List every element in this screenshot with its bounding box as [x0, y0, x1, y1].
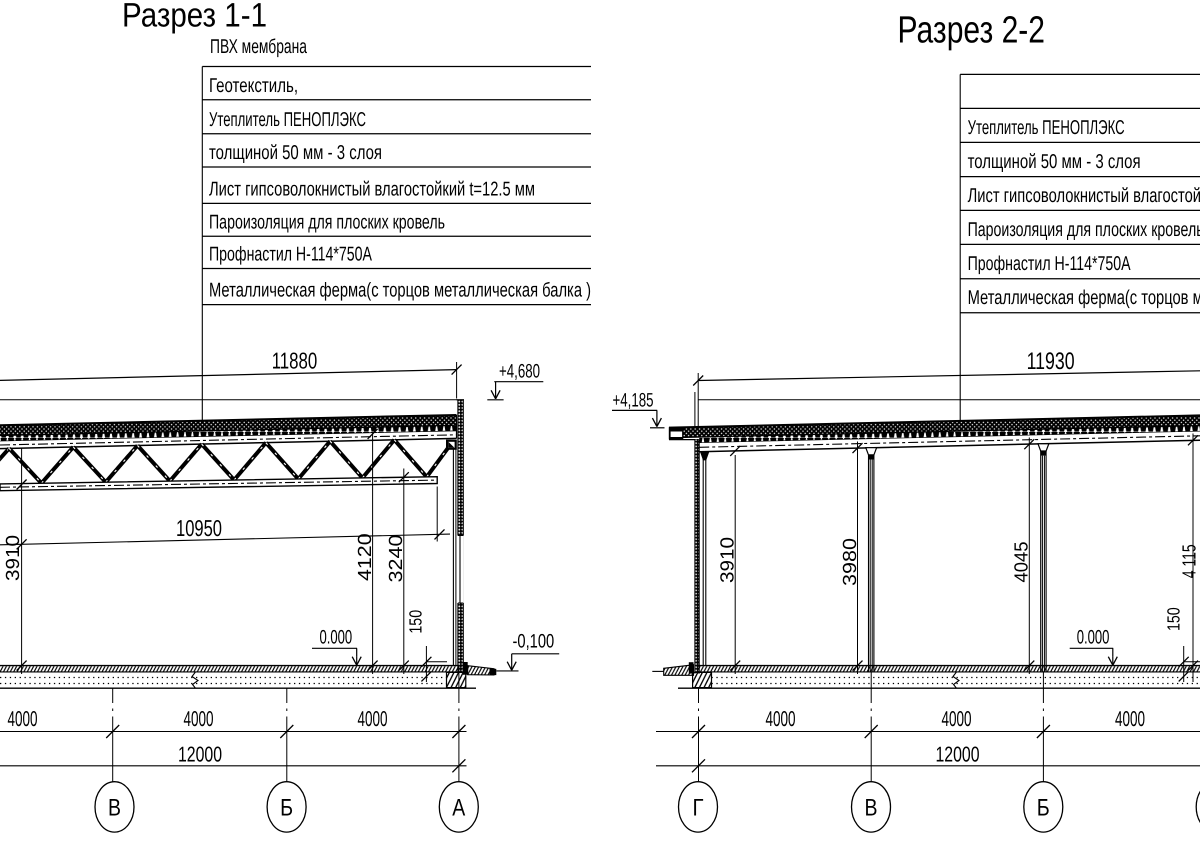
svg-text:Утеплитель ПЕНОПЛЭКС: Утеплитель ПЕНОПЛЭКС	[968, 117, 1125, 139]
svg-text:11930: 11930	[1027, 348, 1075, 375]
svg-text:Б: Б	[1037, 795, 1050, 822]
svg-text:4000: 4000	[1115, 707, 1145, 731]
svg-text:Утеплитель ПЕНОПЛЭКС: Утеплитель ПЕНОПЛЭКС	[209, 109, 366, 131]
svg-text:Г: Г	[693, 795, 704, 822]
svg-text:толщиной 50 мм - 3 слоя: толщиной 50 мм - 3 слоя	[968, 151, 1141, 173]
svg-text:3240: 3240	[386, 535, 407, 583]
svg-text:Металлическая ферма(с торцов м: Металлическая ферма(с торцов металлическ…	[968, 287, 1200, 309]
svg-text:4045: 4045	[1012, 542, 1033, 583]
svg-text:Лист гипсоволокнистый влагосто: Лист гипсоволокнистый влагостойкий t=12.…	[209, 178, 535, 200]
svg-text:0.000: 0.000	[1077, 626, 1110, 648]
svg-text:4000: 4000	[942, 707, 972, 731]
svg-text:4000: 4000	[766, 707, 796, 731]
svg-text:Геотекстиль,: Геотекстиль,	[209, 75, 298, 97]
svg-text:12000: 12000	[936, 742, 980, 766]
svg-text:Пароизоляция для плоских крове: Пароизоляция для плоских кровель	[968, 219, 1200, 241]
svg-text:4 115: 4 115	[1180, 544, 1200, 578]
svg-text:12000: 12000	[178, 742, 222, 766]
svg-text:Б: Б	[280, 795, 293, 822]
svg-text:4120: 4120	[355, 533, 376, 581]
svg-text:Профнастил Н-114*750А: Профнастил Н-114*750А	[209, 244, 372, 266]
svg-text:4000: 4000	[8, 707, 38, 731]
svg-text:+4,680: +4,680	[499, 361, 540, 383]
svg-text:толщиной 50 мм - 3 слоя: толщиной 50 мм - 3 слоя	[209, 142, 382, 164]
svg-text:Профнастил Н-114*750А: Профнастил Н-114*750А	[968, 253, 1131, 275]
svg-text:Пароизоляция для плоских крове: Пароизоляция для плоских кровель	[209, 211, 445, 233]
svg-text:3980: 3980	[840, 538, 861, 586]
svg-text:0.000: 0.000	[320, 626, 353, 648]
svg-text:11880: 11880	[272, 348, 318, 374]
svg-text:10950: 10950	[176, 515, 222, 541]
svg-text:В: В	[108, 795, 121, 822]
svg-text:Лист гипсоволокнистый влагосто: Лист гипсоволокнистый влагостойкий t=12.…	[968, 185, 1200, 207]
svg-text:+4,185: +4,185	[613, 389, 654, 411]
svg-text:А: А	[452, 795, 465, 822]
svg-text:В: В	[865, 795, 878, 822]
svg-text:3910: 3910	[3, 535, 24, 581]
svg-text:Разрез 2-2: Разрез 2-2	[898, 10, 1046, 52]
svg-text:Металлическая ферма(с торцов м: Металлическая ферма(с торцов металлическ…	[209, 280, 591, 302]
svg-text:4000: 4000	[358, 707, 388, 731]
svg-text:150: 150	[1163, 607, 1183, 631]
svg-text:Разрез 1-1: Разрез 1-1	[122, 0, 267, 35]
svg-text:150: 150	[406, 610, 426, 634]
svg-text:4000: 4000	[184, 707, 214, 731]
svg-text:-0,100: -0,100	[513, 631, 555, 653]
svg-text:3910: 3910	[718, 537, 739, 583]
svg-text:ПВХ мембрана: ПВХ мембрана	[210, 36, 308, 58]
